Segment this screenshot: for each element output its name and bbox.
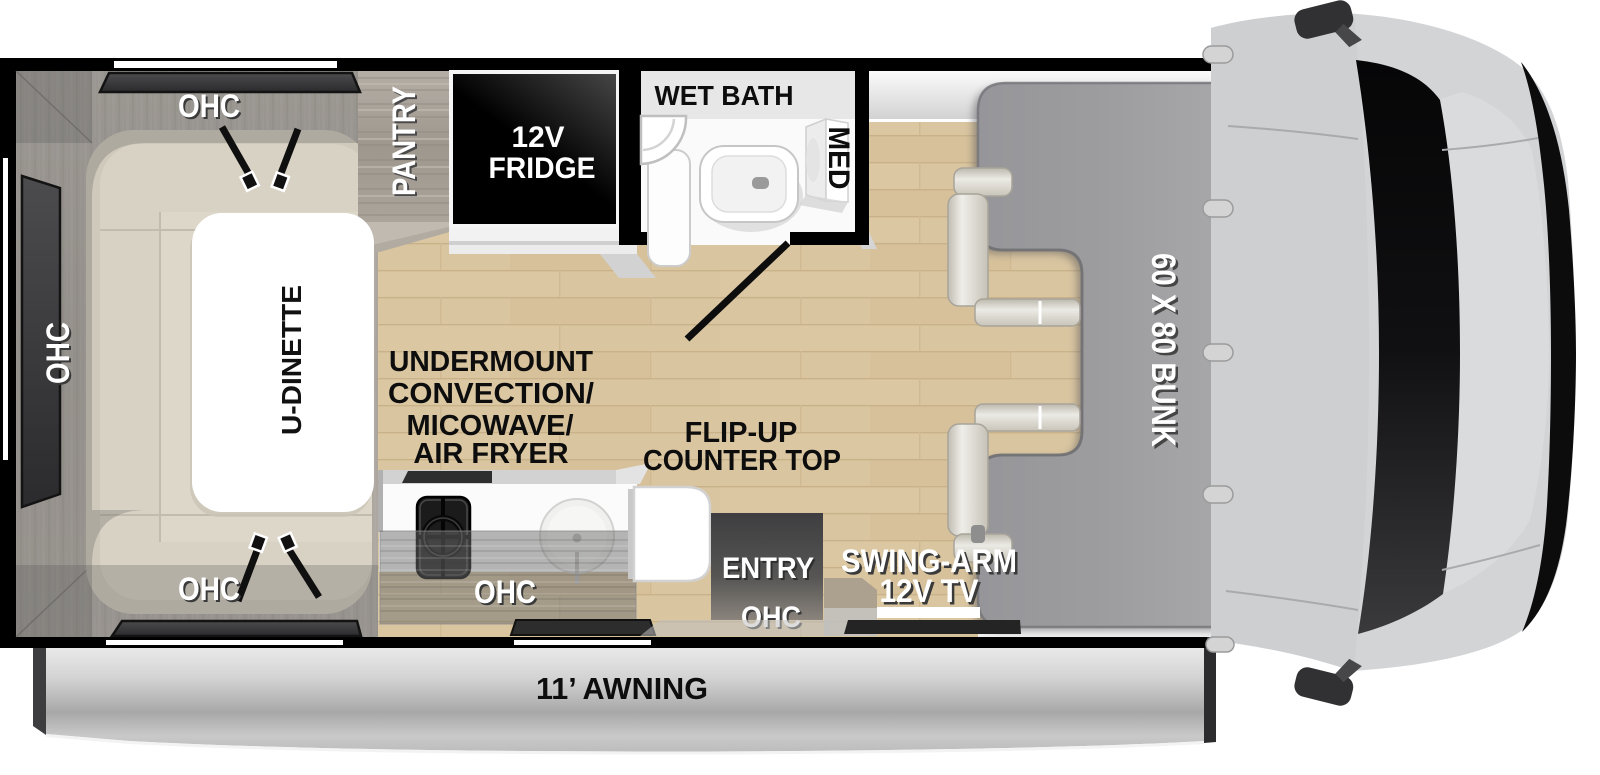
svg-text:12V TV: 12V TV — [880, 573, 980, 609]
svg-text:MED: MED — [822, 127, 855, 190]
svg-text:OHC: OHC — [178, 88, 240, 124]
svg-text:PANTRY: PANTRY — [386, 86, 422, 196]
svg-text:60 X 80 BUNK: 60 X 80 BUNK — [1144, 253, 1182, 447]
svg-text:OHC: OHC — [178, 571, 240, 607]
svg-text:WET BATH: WET BATH — [655, 80, 794, 111]
svg-text:U-DINETTE: U-DINETTE — [276, 285, 307, 435]
svg-text:12V: 12V — [512, 121, 565, 154]
svg-text:AIR FRYER: AIR FRYER — [413, 438, 568, 470]
svg-text:OHC: OHC — [40, 322, 76, 384]
svg-text:OHC: OHC — [474, 574, 536, 610]
svg-text:FRIDGE: FRIDGE — [489, 152, 596, 185]
svg-text:COUNTER TOP: COUNTER TOP — [643, 445, 841, 477]
svg-text:ENTRY: ENTRY — [722, 552, 814, 585]
svg-text:UNDERMOUNT: UNDERMOUNT — [389, 346, 593, 378]
svg-text:11’ AWNING: 11’ AWNING — [536, 671, 708, 706]
svg-text:CONVECTION/: CONVECTION/ — [388, 378, 594, 410]
